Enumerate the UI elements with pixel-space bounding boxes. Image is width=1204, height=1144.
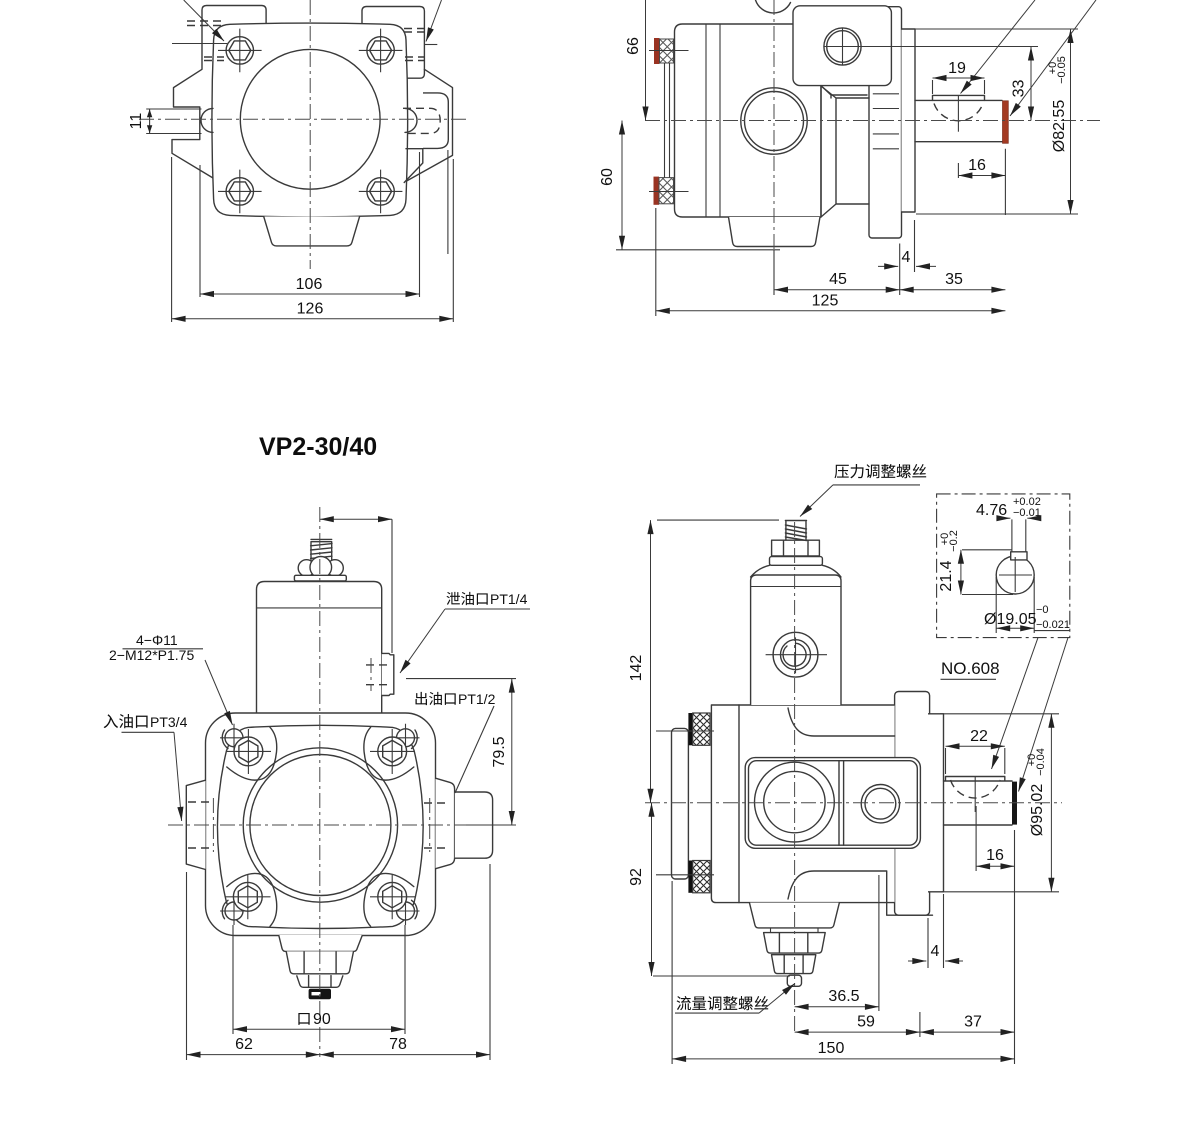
svg-text:PT1/2: PT1/2 [458, 691, 496, 707]
svg-text:4.76: 4.76 [976, 502, 1007, 519]
svg-text:Ø82.55: Ø82.55 [1051, 100, 1068, 153]
svg-text:66: 66 [625, 37, 642, 55]
svg-text:4: 4 [931, 943, 940, 960]
svg-text:142: 142 [628, 655, 645, 682]
svg-text:21.4: 21.4 [938, 560, 955, 591]
svg-text:4: 4 [902, 249, 911, 266]
svg-text:92: 92 [628, 868, 645, 886]
svg-text:−0: −0 [1036, 604, 1049, 616]
svg-text:33: 33 [1011, 80, 1028, 98]
svg-text:45: 45 [829, 271, 847, 288]
svg-text:35: 35 [945, 271, 963, 288]
svg-text:11: 11 [128, 113, 145, 130]
svg-text:2−M12*P1.75: 2−M12*P1.75 [109, 647, 194, 663]
svg-text:4−Φ11: 4−Φ11 [136, 632, 178, 648]
svg-text:19: 19 [948, 60, 966, 77]
svg-text:37: 37 [964, 1014, 982, 1031]
svg-text:Ø95.02: Ø95.02 [1029, 784, 1046, 837]
svg-text:VP2-30/40: VP2-30/40 [259, 433, 377, 461]
svg-text:22: 22 [970, 728, 988, 745]
svg-text:−0.05: −0.05 [1056, 56, 1068, 84]
svg-text:79.5: 79.5 [491, 736, 508, 767]
svg-text:62: 62 [235, 1036, 253, 1053]
svg-text:16: 16 [986, 847, 1004, 864]
svg-text:36.5: 36.5 [828, 988, 859, 1005]
svg-text:60: 60 [599, 168, 616, 186]
svg-text:Ø19.05: Ø19.05 [984, 611, 1037, 628]
svg-text:59: 59 [857, 1014, 875, 1031]
svg-text:125: 125 [812, 293, 839, 310]
svg-text:−0.021: −0.021 [1036, 619, 1070, 631]
svg-text:150: 150 [818, 1040, 845, 1057]
svg-text:126: 126 [297, 301, 324, 318]
svg-text:−0.2: −0.2 [948, 530, 960, 552]
svg-text:−0.01: −0.01 [1013, 507, 1041, 519]
svg-text:78: 78 [389, 1036, 407, 1053]
svg-text:PT1/4: PT1/4 [490, 591, 528, 607]
svg-text:16: 16 [968, 157, 986, 174]
svg-text:PT3/4: PT3/4 [150, 714, 188, 730]
svg-text:−0.04: −0.04 [1035, 748, 1047, 776]
svg-text:NO.608: NO.608 [941, 659, 1000, 678]
svg-text:90: 90 [313, 1011, 331, 1028]
svg-text:106: 106 [296, 276, 323, 293]
